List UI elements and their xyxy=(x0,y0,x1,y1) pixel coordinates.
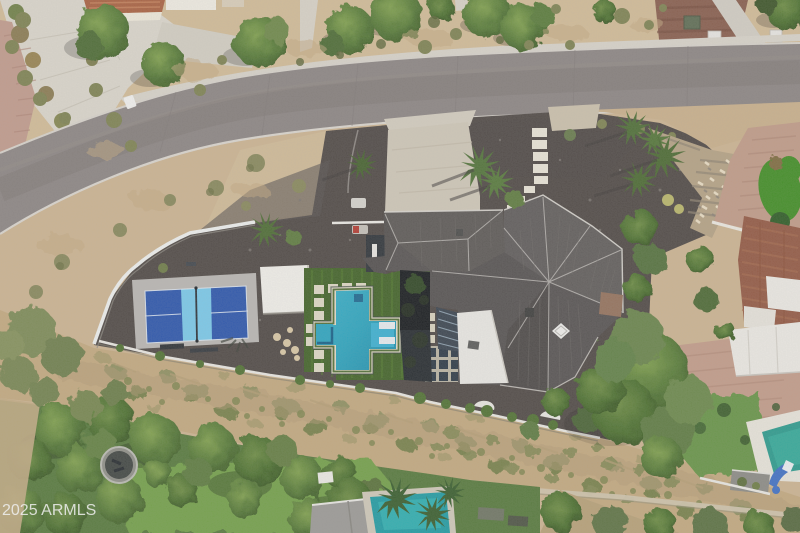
svg-text:2025 ARMLS: 2025 ARMLS xyxy=(2,502,96,519)
